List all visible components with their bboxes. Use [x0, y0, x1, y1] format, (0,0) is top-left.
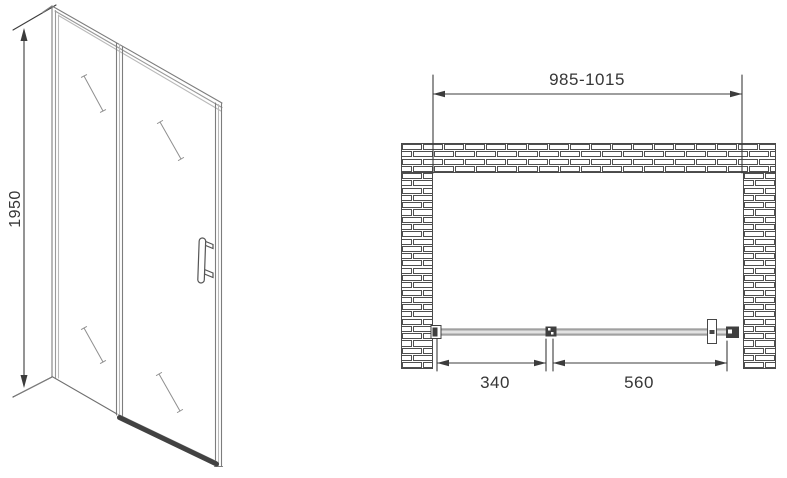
- bottom-rail: [120, 418, 217, 465]
- door-handle-icon: [198, 238, 213, 283]
- door-plan-section: [431, 320, 739, 344]
- door-section-dimension: [553, 339, 727, 371]
- glass-shine-icon: [81, 75, 105, 113]
- arrow-right-icon: [730, 91, 742, 97]
- floor-line: [14, 377, 52, 397]
- arrow-left-icon: [437, 360, 449, 366]
- door-frame: [14, 6, 223, 467]
- shower-door-technical-drawing: 1950 985-1015 340 560: [0, 0, 787, 478]
- height-dimension-label: 1950: [7, 186, 25, 232]
- arrow-left-icon: [433, 91, 445, 97]
- arrow-left-icon: [553, 360, 565, 366]
- arrow-right-icon: [534, 360, 546, 366]
- arrow-down-icon: [21, 375, 28, 388]
- glass-shine-icon: [81, 327, 105, 364]
- fixed-section-dimension: [437, 339, 546, 371]
- glass-shine-marks: [81, 75, 183, 413]
- arrow-up-icon: [21, 28, 28, 41]
- right-wall-profile: [727, 327, 739, 338]
- front-view: [13, 5, 223, 467]
- glass-shine-icon: [156, 373, 182, 413]
- handle-plan-icon: [708, 320, 717, 344]
- left-wall-profile: [431, 326, 441, 339]
- panel-connector: [546, 327, 557, 337]
- opening-width-dimension-label: 985-1015: [527, 71, 647, 89]
- opening-width-dimension: [433, 75, 742, 173]
- glass-shine-icon: [157, 121, 183, 161]
- drawing-linework: [0, 0, 787, 478]
- fixed-section-dimension-label: 340: [460, 374, 530, 392]
- arrow-right-icon: [715, 360, 727, 366]
- plan-view: [431, 75, 742, 371]
- door-section-dimension-label: 560: [604, 374, 674, 392]
